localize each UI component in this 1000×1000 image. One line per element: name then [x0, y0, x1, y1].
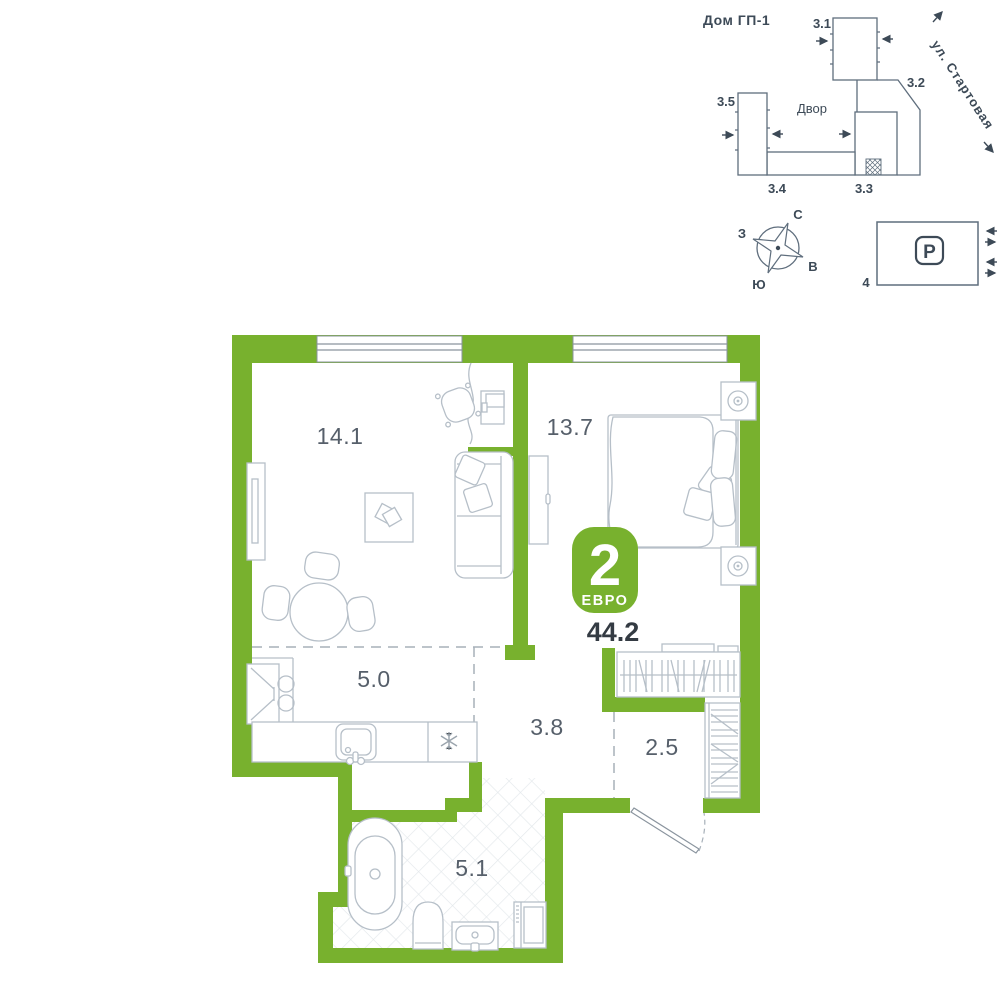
- entrance-door: [631, 808, 705, 853]
- bedroom-dresser: [529, 456, 548, 544]
- building-3-1: [833, 18, 877, 80]
- parking-number: 4: [862, 275, 870, 290]
- area-hallway: 3.8: [530, 714, 563, 740]
- area-wardrobe: 2.5: [645, 734, 678, 760]
- parking-symbol: P: [923, 242, 936, 263]
- area-living-room: 14.1: [317, 423, 364, 449]
- floorplan-page: Дом ГП-1 ул. Стартовая 3.1 3.2: [0, 0, 1000, 1000]
- window-living: [317, 336, 462, 362]
- badge-rooms-number: 2: [589, 533, 621, 598]
- bed: [608, 415, 738, 548]
- bathroom-sink: [452, 922, 498, 951]
- apartment-plan: 14.1 13.7 5.0 3.8 2.5 5.1 2 ЕВРО 44.2: [232, 335, 760, 963]
- dining-chair: [346, 595, 377, 633]
- dining-chair: [261, 585, 291, 622]
- area-kitchen: 5.0: [357, 666, 390, 692]
- bed-pillow: [710, 477, 736, 527]
- compass-west: З: [738, 226, 746, 241]
- nightstand: [721, 547, 756, 585]
- wardrobe-closet: [705, 703, 740, 798]
- label-3-3: 3.3: [855, 181, 873, 196]
- site-plan: Дом ГП-1 ул. Стартовая 3.1 3.2: [703, 12, 997, 196]
- dining-table: [290, 583, 348, 641]
- window-bedroom: [573, 336, 727, 362]
- label-3-1: 3.1: [813, 16, 831, 31]
- monitor-icon: [486, 394, 504, 407]
- label-3-4: 3.4: [768, 181, 787, 196]
- current-building-marker: [866, 159, 881, 175]
- living-room-furniture: [247, 363, 513, 641]
- parking-block: P 4: [862, 222, 997, 290]
- washing-machine: [514, 902, 546, 948]
- dining-chair: [303, 551, 340, 581]
- apartment-type-badge: 2 ЕВРО: [572, 527, 638, 613]
- building-3-5: [738, 93, 767, 175]
- bathtub-icon: [345, 818, 402, 930]
- area-bathroom: 5.1: [455, 855, 488, 881]
- tv-icon: [252, 479, 258, 543]
- compass-south: Ю: [752, 277, 765, 292]
- nightstand: [721, 382, 756, 420]
- building-3-4: [767, 152, 855, 175]
- courtyard-label: Двор: [797, 101, 827, 116]
- desk-item: [482, 403, 487, 412]
- compass-east: В: [808, 259, 817, 274]
- floorplan-drawing: Дом ГП-1 ул. Стартовая 3.1 3.2: [0, 0, 1000, 1000]
- bed-pillow: [711, 430, 738, 480]
- kitchen-sink: [336, 724, 376, 765]
- label-3-2: 3.2: [907, 75, 925, 90]
- label-3-5: 3.5: [717, 94, 735, 109]
- site-plan-title: Дом ГП-1: [703, 12, 770, 28]
- burner-icon: [278, 676, 294, 692]
- burner-icon: [278, 695, 294, 711]
- parking-arrows: [985, 231, 997, 273]
- desk-chair: [435, 382, 481, 427]
- compass-rose: С З В Ю: [738, 207, 818, 292]
- area-bedroom: 13.7: [547, 414, 594, 440]
- compass-north: С: [793, 207, 803, 222]
- desk-area: [435, 363, 504, 444]
- sofa: [454, 452, 513, 578]
- street: ул. Стартовая: [928, 12, 997, 152]
- toilet-icon: [413, 902, 443, 949]
- total-area: 44.2: [587, 617, 640, 647]
- street-label: ул. Стартовая: [928, 37, 997, 132]
- bedroom-closet: [617, 644, 740, 697]
- badge-type-label: ЕВРО: [582, 593, 629, 609]
